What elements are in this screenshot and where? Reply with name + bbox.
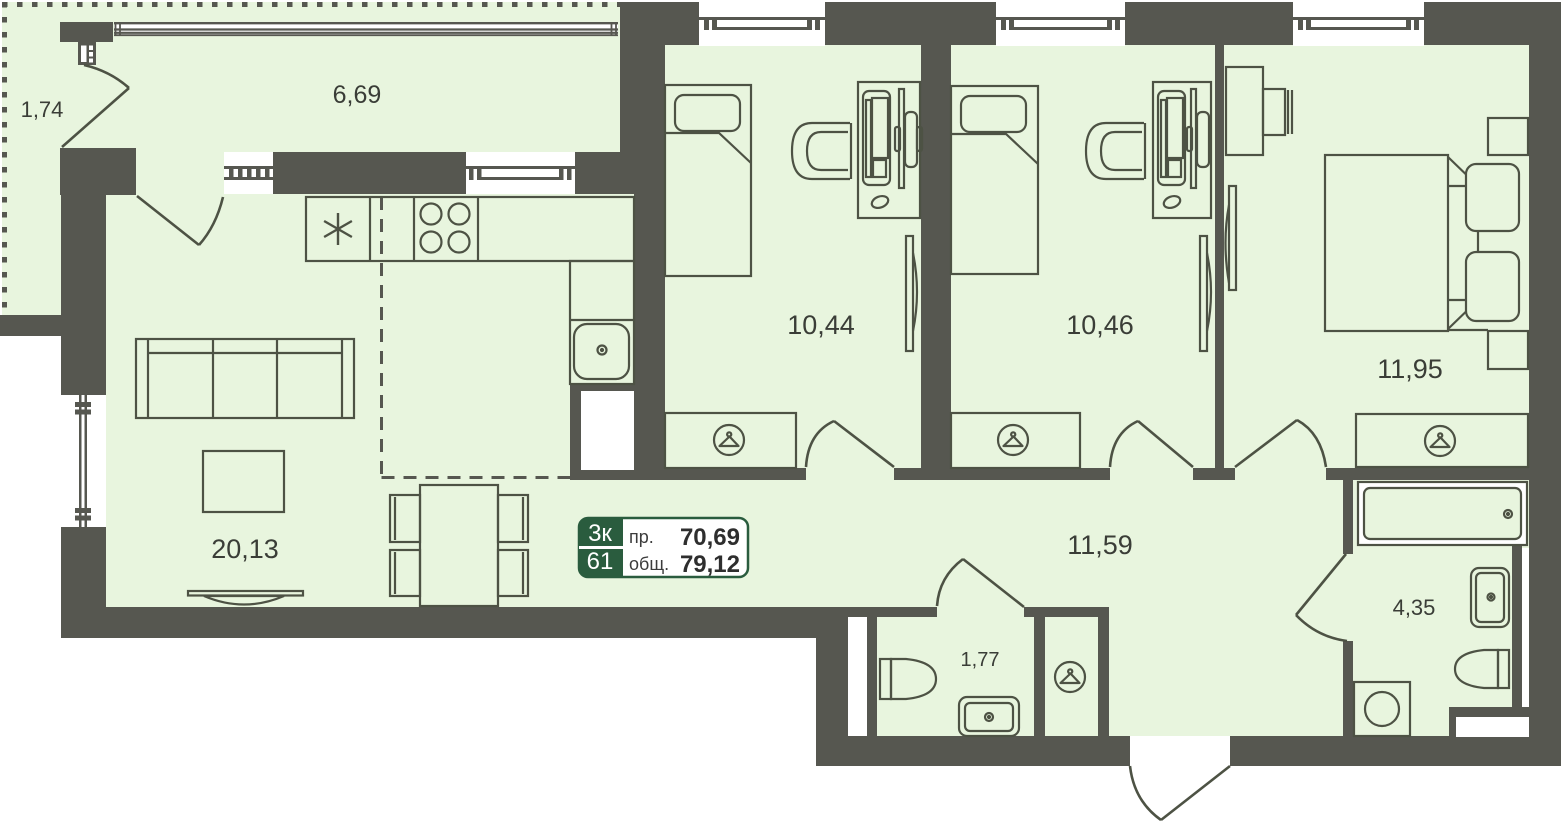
svg-text:11,59: 11,59 [1067,530,1133,560]
svg-text:общ.: общ. [629,554,669,574]
svg-text:70,69: 70,69 [680,524,740,551]
svg-text:пр.: пр. [629,527,654,547]
svg-text:10,44: 10,44 [787,310,855,340]
svg-text:20,13: 20,13 [211,534,279,564]
svg-text:1,77: 1,77 [961,649,1000,671]
svg-text:61: 61 [587,548,614,575]
svg-text:6,69: 6,69 [333,81,382,109]
svg-text:4,35: 4,35 [1393,595,1436,620]
svg-text:11,95: 11,95 [1377,354,1443,384]
svg-text:1,74: 1,74 [21,97,64,122]
svg-text:79,12: 79,12 [680,551,740,578]
svg-text:10,46: 10,46 [1066,310,1134,340]
svg-text:3к: 3к [588,520,612,547]
